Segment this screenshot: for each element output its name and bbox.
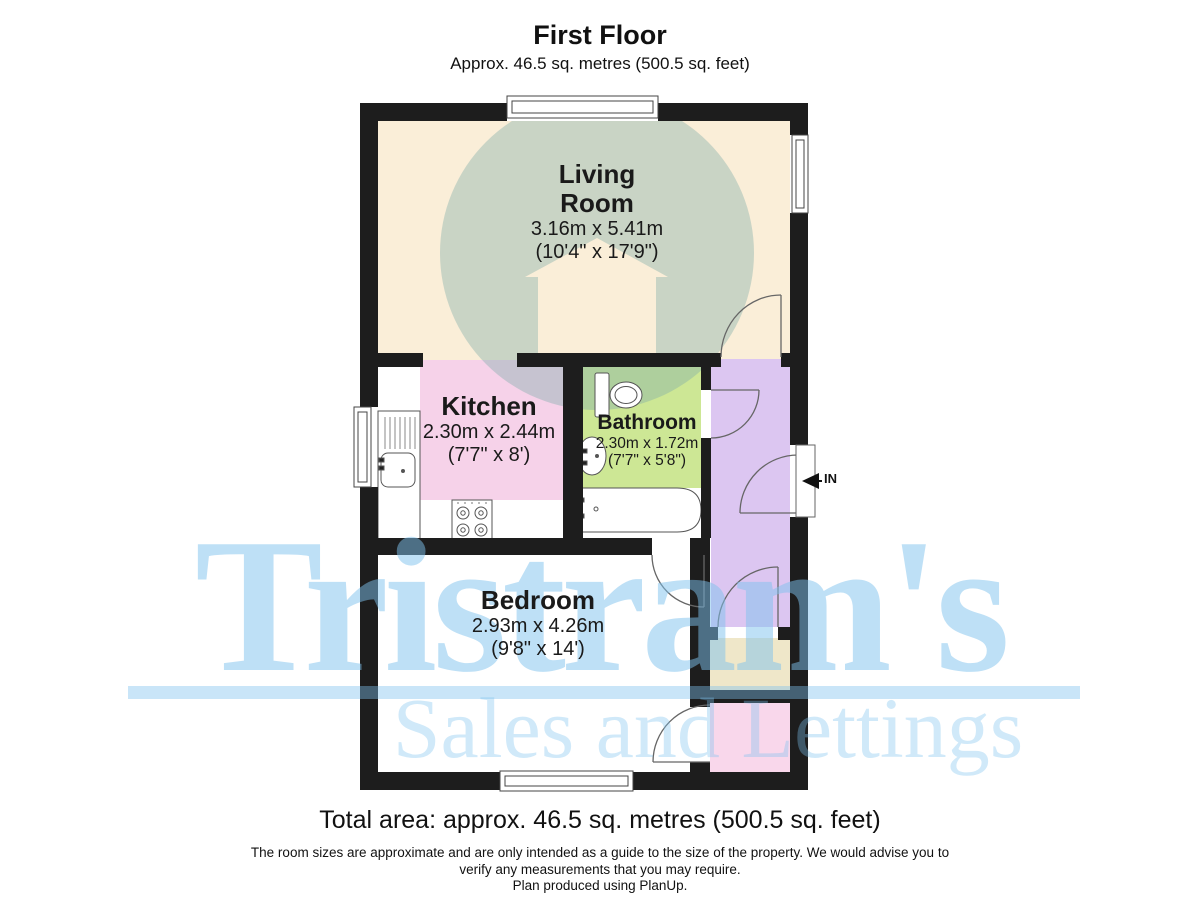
entrance [796, 445, 822, 517]
page-subtitle: Approx. 46.5 sq. metres (500.5 sq. feet) [0, 54, 1200, 74]
bedroom-dim-metric: 2.93m x 4.26m [472, 615, 604, 637]
room-label-bedroom: Bedroom 2.93m x 4.26m (9'8" x 14') [472, 586, 604, 660]
total-area-text: Total area: approx. 46.5 sq. metres (500… [0, 806, 1200, 835]
cupboard-area [710, 701, 790, 772]
window-icon [500, 771, 633, 791]
disclaimer-line1: The room sizes are approximate and are o… [0, 844, 1200, 861]
living-room-name-line2: Room [531, 189, 663, 218]
living-room-name-line1: Living [531, 160, 663, 189]
store-area [710, 638, 790, 692]
window-icon [792, 135, 808, 213]
room-label-kitchen: Kitchen 2.30m x 2.44m (7'7" x 8') [423, 392, 555, 466]
kitchen-dim-metric: 2.30m x 2.44m [423, 421, 555, 443]
room-label-living: Living Room 3.16m x 5.41m (10'4" x 17'9"… [531, 160, 663, 263]
disclaimer-text: The room sizes are approximate and are o… [0, 844, 1200, 878]
bathroom-name: Bathroom [596, 411, 699, 435]
living-room-dim-imperial: (10'4" x 17'9") [531, 241, 663, 263]
disclaimer-line2: verify any measurements that you may req… [0, 861, 1200, 878]
kitchen-dim-imperial: (7'7" x 8') [423, 444, 555, 466]
window-icon [354, 407, 371, 487]
living-room-dim-metric: 3.16m x 5.41m [531, 218, 663, 240]
kitchen-name: Kitchen [423, 392, 555, 421]
window-icon [507, 96, 658, 118]
page-title: First Floor [0, 20, 1200, 51]
bedroom-name: Bedroom [472, 586, 604, 615]
entrance-in-label: IN [824, 471, 837, 486]
bathtub-icon [573, 488, 701, 532]
produced-by-text: Plan produced using PlanUp. [0, 878, 1200, 893]
stove-icon [452, 500, 492, 540]
kitchen-sink-icon [378, 411, 420, 545]
bathroom-dim-metric: 2.30m x 1.72m [596, 435, 699, 452]
bathroom-dim-imperial: (7'7" x 5'8") [596, 452, 699, 469]
room-label-bathroom: Bathroom 2.30m x 1.72m (7'7" x 5'8") [596, 411, 699, 469]
bedroom-dim-imperial: (9'8" x 14') [472, 638, 604, 660]
